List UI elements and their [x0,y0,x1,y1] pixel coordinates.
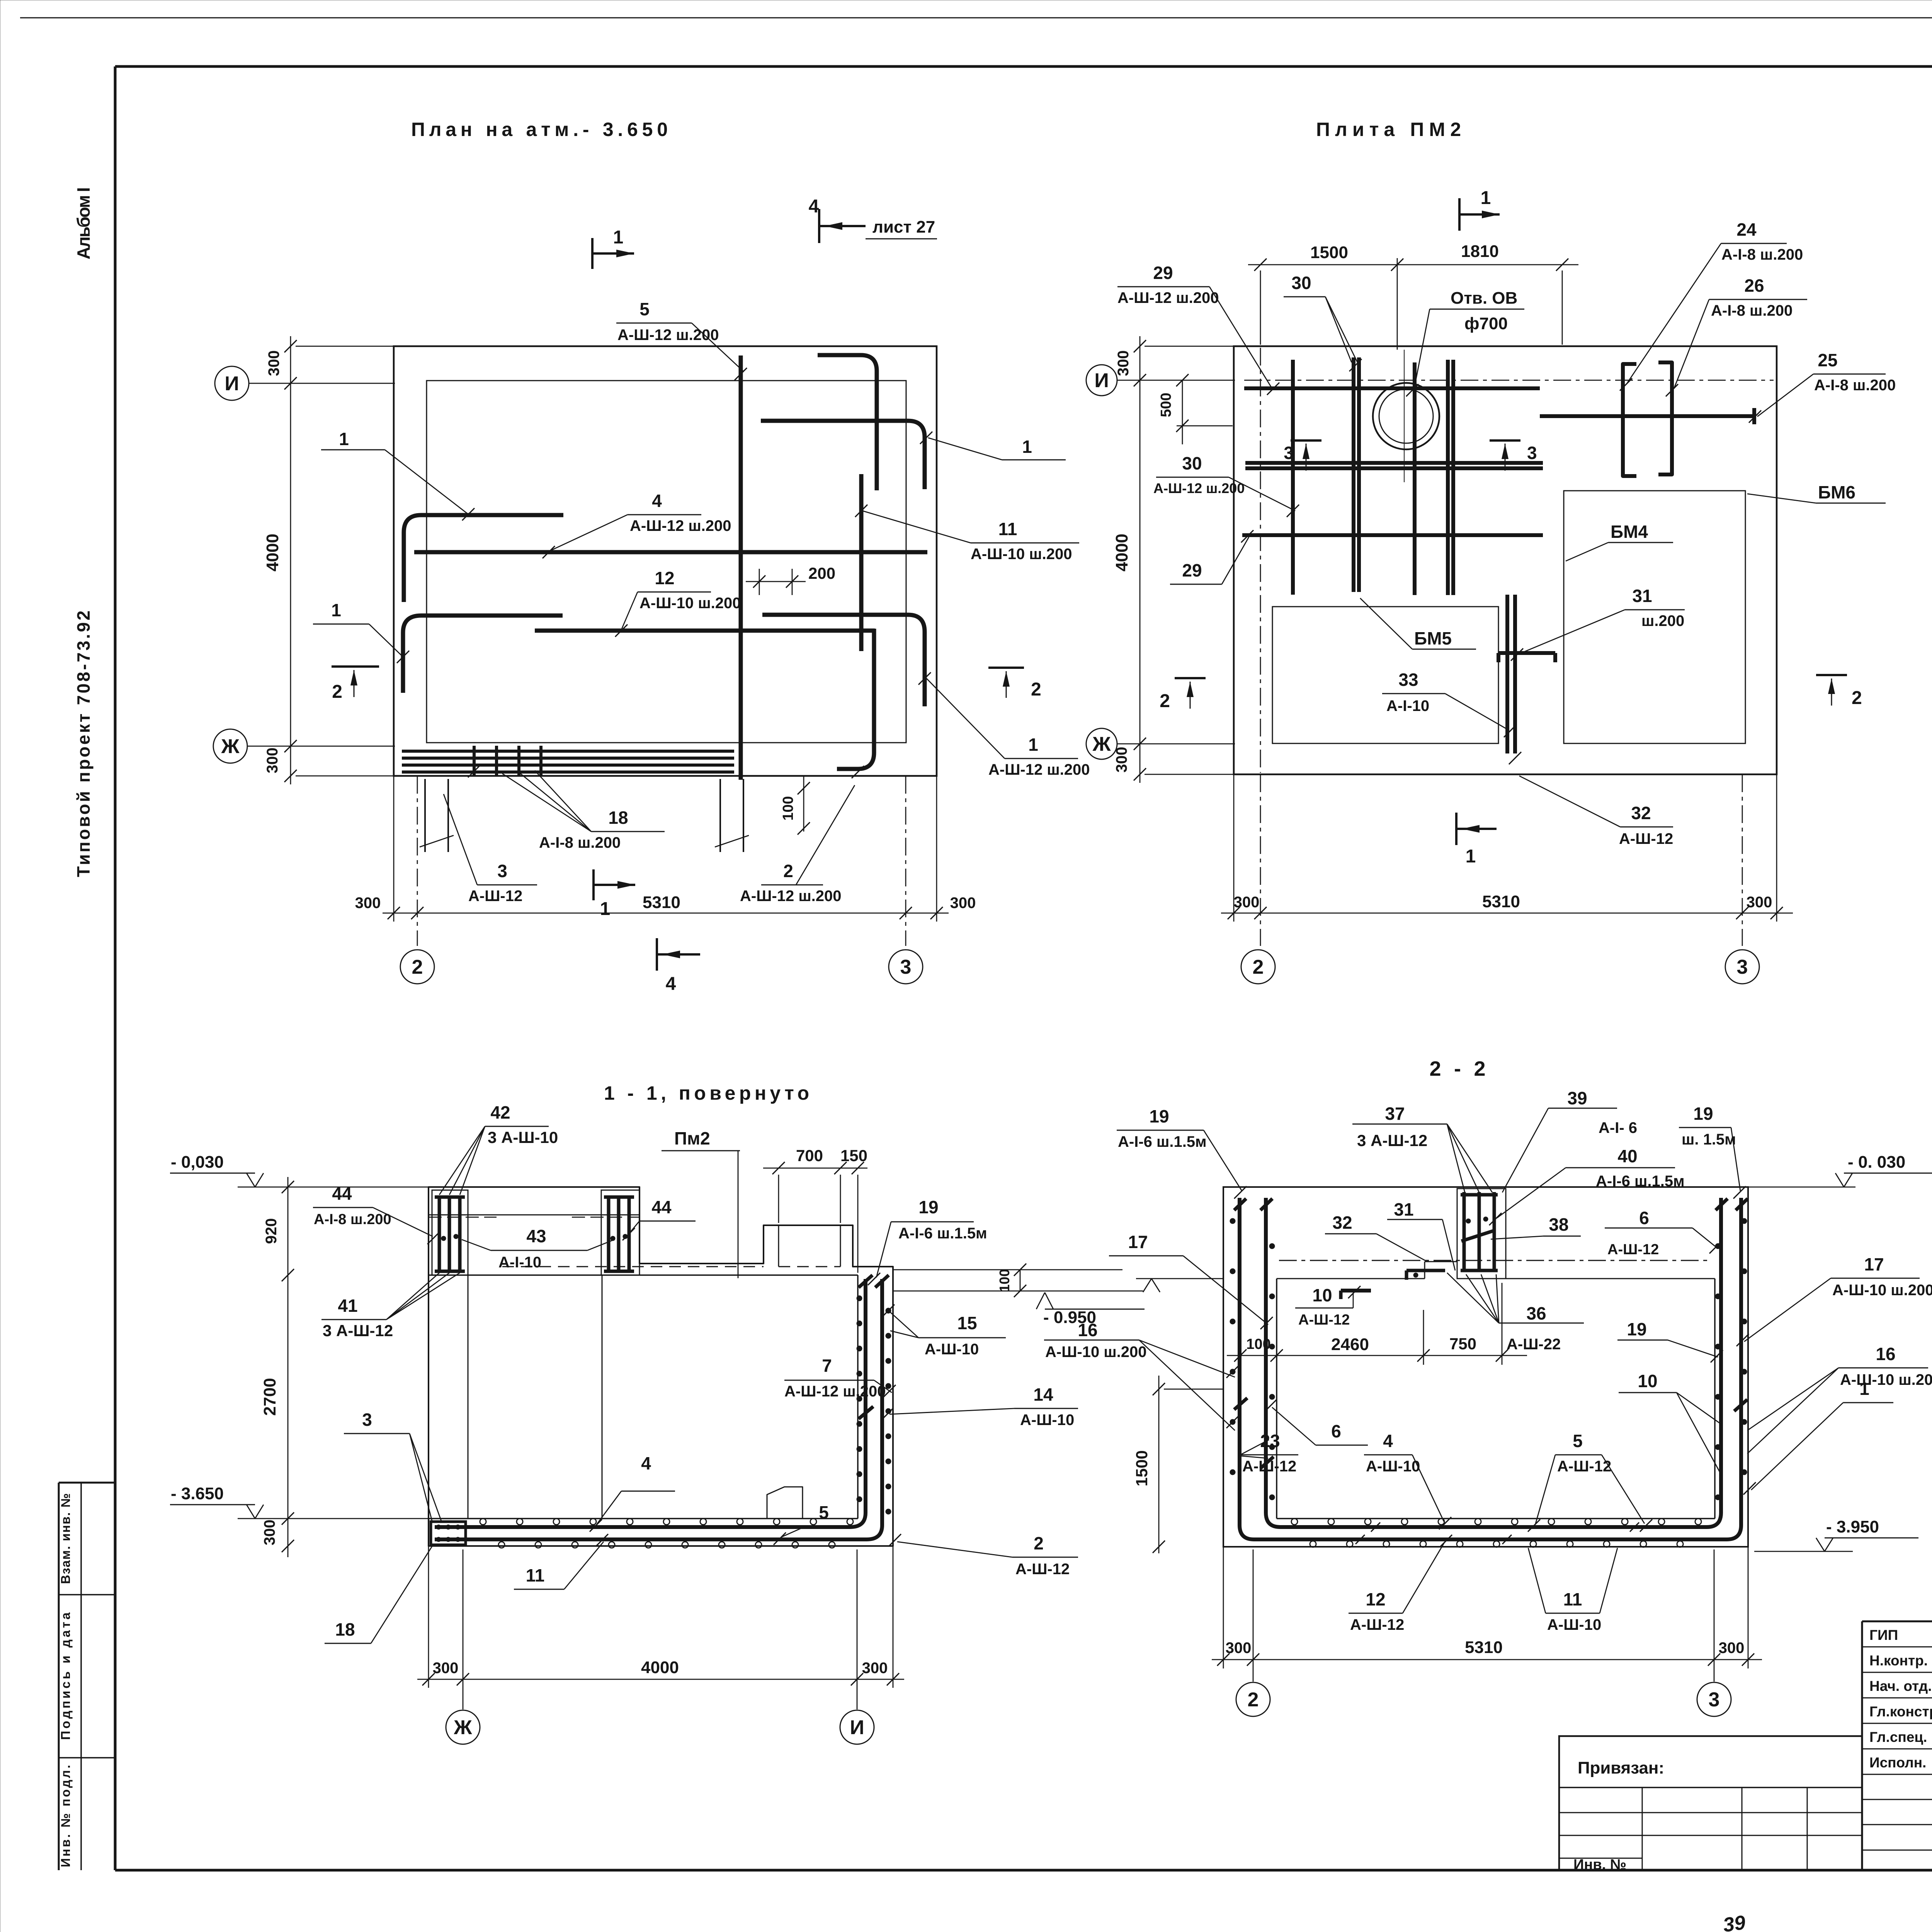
svg-text:4: 4 [652,491,662,511]
svg-text:3: 3 [1737,956,1748,978]
svg-text:А-Ш-10 ш.200: А-Ш-10 ш.200 [639,595,741,612]
svg-text:А-Ш-12 ш.200: А-Ш-12 ш.200 [988,761,1090,778]
svg-text:А-I-6 ш.1.5м: А-I-6 ш.1.5м [1118,1133,1207,1150]
svg-text:А-Ш-12: А-Ш-12 [1298,1312,1350,1328]
svg-text:3: 3 [1284,443,1294,463]
svg-text:500: 500 [1158,393,1174,417]
svg-text:5: 5 [639,299,650,319]
svg-text:41: 41 [338,1296,357,1316]
svg-text:1500: 1500 [1133,1450,1151,1486]
svg-text:3 А-Ш-10: 3 А-Ш-10 [488,1128,558,1146]
svg-text:32: 32 [1332,1213,1352,1233]
svg-text:300: 300 [1234,894,1260,911]
svg-text:25: 25 [1818,350,1837,370]
svg-text:10: 10 [1638,1371,1657,1391]
svg-text:А-I-8 ш.200: А-I-8 ш.200 [314,1211,391,1228]
svg-text:300: 300 [862,1660,888,1677]
svg-text:ш. 1.5м: ш. 1.5м [1682,1131,1736,1148]
svg-text:2: 2 [412,956,423,978]
svg-text:3 А-Ш-12: 3 А-Ш-12 [1357,1131,1427,1150]
svg-text:24: 24 [1736,219,1757,240]
svg-text:А-Ш-10: А-Ш-10 [1366,1458,1420,1475]
svg-text:4000: 4000 [1112,534,1131,571]
svg-text:3: 3 [1527,443,1537,463]
svg-text:1: 1 [1466,846,1476,867]
svg-text:300: 300 [265,350,282,376]
svg-text:Ж: Ж [221,735,240,758]
svg-text:12: 12 [655,568,674,588]
svg-text:Нач. отд.: Нач. отд. [1869,1678,1932,1694]
svg-text:4: 4 [809,196,819,217]
svg-text:1: 1 [1028,735,1038,755]
svg-text:39: 39 [1722,1911,1747,1932]
svg-text:44: 44 [332,1184,352,1204]
svg-text:23: 23 [1260,1431,1280,1451]
svg-text:300: 300 [355,895,381,912]
svg-text:3: 3 [1709,1689,1720,1711]
svg-text:А-Ш-10: А-Ш-10 [925,1341,979,1358]
svg-text:- 0,030: - 0,030 [171,1153,224,1172]
svg-text:А-I- 6: А-I- 6 [1599,1119,1637,1136]
svg-text:6: 6 [1639,1208,1649,1228]
svg-text:Плита ПМ2: Плита ПМ2 [1316,119,1461,140]
svg-text:2 - 2: 2 - 2 [1430,1057,1486,1080]
svg-text:300: 300 [950,895,976,912]
svg-text:4000: 4000 [641,1658,679,1677]
svg-text:100: 100 [997,1269,1012,1292]
svg-text:2: 2 [1248,1689,1259,1711]
svg-text:30: 30 [1182,453,1202,473]
svg-text:300: 300 [1226,1639,1252,1656]
svg-text:7: 7 [822,1355,832,1376]
svg-text:42: 42 [490,1102,510,1122]
svg-text:4000: 4000 [263,534,282,571]
svg-text:14: 14 [1033,1384,1053,1405]
svg-text:1: 1 [600,899,611,919]
svg-text:А-I-8 ш.200: А-I-8 ш.200 [1814,377,1896,394]
svg-text:2: 2 [1253,956,1264,978]
svg-text:700: 700 [796,1146,823,1165]
svg-text:12: 12 [1366,1589,1385,1609]
svg-text:2: 2 [332,682,342,702]
svg-text:38: 38 [1549,1214,1568,1235]
svg-text:БМ6: БМ6 [1818,482,1855,502]
svg-text:А-Ш-10 ш.200: А-Ш-10 ш.200 [1045,1344,1147,1361]
svg-text:Гл.констр.: Гл.констр. [1869,1704,1932,1719]
svg-text:16: 16 [1078,1320,1097,1340]
svg-text:19: 19 [1149,1106,1169,1126]
svg-text:5310: 5310 [643,893,680,912]
svg-text:А-I-6 ш.1.5м: А-I-6 ш.1.5м [898,1225,987,1242]
svg-text:300: 300 [261,1520,278,1546]
svg-text:19: 19 [918,1197,938,1217]
svg-text:И: И [850,1716,864,1739]
svg-text:11: 11 [526,1565,545,1585]
svg-text:4: 4 [666,974,676,994]
svg-text:А-Ш-12: А-Ш-12 [468,888,522,905]
svg-text:5: 5 [1573,1431,1583,1451]
svg-text:2700: 2700 [260,1378,279,1416]
svg-text:31: 31 [1632,586,1652,606]
svg-text:2460: 2460 [1331,1335,1369,1354]
svg-text:Типовой проект 708-73.92: Типовой проект 708-73.92 [73,611,94,877]
svg-text:19: 19 [1693,1104,1713,1124]
svg-text:Гл.спец.: Гл.спец. [1869,1729,1927,1745]
svg-text:300: 300 [1719,1639,1745,1656]
svg-text:32: 32 [1631,803,1651,823]
svg-text:БМ4: БМ4 [1611,522,1648,542]
svg-text:1: 1 [613,227,624,248]
svg-text:А-Ш-10 ш.200: А-Ш-10 ш.200 [1840,1371,1932,1388]
svg-text:А-I-8 ш.200: А-I-8 ш.200 [1711,302,1793,319]
svg-text:А-Ш-10 ш.200: А-Ш-10 ш.200 [971,546,1072,563]
svg-text:А-Ш-12 ш.200: А-Ш-12 ш.200 [630,517,731,534]
svg-text:БМ5: БМ5 [1414,628,1452,648]
svg-text:Отв. ОВ: Отв. ОВ [1451,289,1517,308]
svg-text:3: 3 [497,861,507,881]
svg-text:750: 750 [1449,1335,1476,1353]
svg-text:15: 15 [957,1313,977,1333]
svg-text:А-Ш-12 ш.200: А-Ш-12 ш.200 [1153,480,1245,496]
svg-text:Инв. №: Инв. № [1573,1857,1626,1873]
svg-text:Пм2: Пм2 [674,1128,710,1148]
svg-text:лист 27: лист 27 [872,218,935,236]
svg-text:А-Ш-12: А-Ш-12 [1015,1561,1070,1578]
svg-text:300: 300 [433,1660,459,1677]
svg-text:А-I-10: А-I-10 [498,1254,541,1271]
svg-text:150: 150 [840,1146,867,1165]
svg-text:6: 6 [1331,1421,1341,1441]
svg-text:А-Ш-22: А-Ш-22 [1507,1336,1561,1353]
svg-text:А-Ш-10 ш.200: А-Ш-10 ш.200 [1832,1282,1932,1299]
svg-text:Альбом I: Альбом I [73,187,94,260]
svg-text:- 3.650: - 3.650 [171,1484,224,1503]
svg-text:1: 1 [331,600,341,620]
svg-text:Исполн.: Исполн. [1869,1755,1926,1770]
svg-text:2: 2 [783,861,793,881]
svg-text:37: 37 [1385,1104,1405,1124]
svg-text:17: 17 [1864,1254,1884,1274]
svg-text:А-Ш-10: А-Ш-10 [1547,1616,1601,1633]
svg-text:ГИП: ГИП [1869,1627,1898,1643]
svg-text:11: 11 [998,519,1017,539]
svg-text:А-I-6 ш.1.5м: А-I-6 ш.1.5м [1596,1173,1685,1190]
svg-text:А-Ш-12 ш.200: А-Ш-12 ш.200 [617,327,719,344]
svg-text:26: 26 [1744,276,1764,296]
svg-text:19: 19 [1627,1319,1646,1339]
svg-text:5: 5 [819,1502,829,1522]
svg-text:39: 39 [1567,1088,1587,1108]
svg-text:А-Ш-12: А-Ш-12 [1557,1458,1611,1475]
svg-text:300: 300 [1747,894,1772,911]
svg-text:10: 10 [1312,1285,1332,1305]
svg-text:300: 300 [1113,747,1130,773]
svg-text:3 А-Ш-12: 3 А-Ш-12 [323,1321,393,1340]
svg-text:А-Ш-12: А-Ш-12 [1350,1616,1404,1633]
svg-text:5310: 5310 [1482,892,1520,911]
svg-text:200: 200 [808,564,835,582]
svg-text:100: 100 [780,796,796,820]
svg-text:Инв. № подл.: Инв. № подл. [58,1765,73,1867]
svg-text:30: 30 [1291,273,1311,293]
svg-text:300: 300 [264,748,281,774]
svg-text:1810: 1810 [1461,242,1499,261]
svg-text:А-I-8 ш.200: А-I-8 ш.200 [539,834,621,851]
svg-text:300: 300 [1115,350,1132,376]
svg-text:- 3.950: - 3.950 [1826,1517,1879,1536]
svg-text:Ж: Ж [1092,733,1111,755]
svg-text:29: 29 [1182,560,1202,580]
svg-text:4: 4 [1383,1431,1393,1451]
svg-text:920: 920 [263,1218,280,1244]
svg-text:ш.200: ш.200 [1641,612,1684,629]
svg-text:16: 16 [1876,1344,1895,1364]
svg-text:А-Ш-12: А-Ш-12 [1607,1242,1659,1258]
svg-text:4: 4 [641,1453,651,1473]
svg-text:18: 18 [335,1619,355,1639]
svg-text:ф700: ф700 [1464,314,1508,333]
svg-text:Взам. инв. №: Взам. инв. № [58,1493,73,1584]
svg-text:Ж: Ж [454,1716,473,1739]
svg-text:А-Ш-12 ш.200: А-Ш-12 ш.200 [784,1383,886,1400]
svg-text:А-Ш-12 ш.200: А-Ш-12 ш.200 [1117,289,1219,306]
svg-text:2: 2 [1160,691,1170,711]
svg-text:А-Ш-12: А-Ш-12 [1242,1458,1296,1475]
svg-text:И: И [1094,369,1109,392]
svg-text:А-I-10: А-I-10 [1386,697,1429,714]
svg-text:Н.контр.: Н.контр. [1869,1653,1928,1668]
svg-text:36: 36 [1526,1303,1546,1323]
svg-text:11: 11 [1563,1589,1582,1609]
svg-text:2: 2 [1034,1533,1044,1553]
svg-text:2: 2 [1852,688,1862,708]
svg-text:43: 43 [526,1226,546,1246]
svg-text:100: 100 [1246,1336,1270,1352]
svg-text:1: 1 [1022,437,1032,457]
svg-text:31: 31 [1394,1199,1413,1219]
svg-text:1: 1 [1859,1379,1869,1399]
svg-text:33: 33 [1398,670,1418,690]
svg-text:- 0. 030: - 0. 030 [1848,1153,1905,1172]
svg-text:А-Ш-10: А-Ш-10 [1020,1412,1074,1429]
svg-text:1: 1 [1481,188,1491,208]
svg-text:А-Ш-12: А-Ш-12 [1619,830,1673,847]
svg-text:44: 44 [651,1197,672,1217]
svg-text:29: 29 [1153,263,1173,283]
svg-text:А-I-8 ш.200: А-I-8 ш.200 [1721,246,1803,263]
svg-text:1: 1 [339,429,349,449]
svg-text:А-Ш-12 ш.200: А-Ш-12 ш.200 [740,888,842,905]
svg-text:2: 2 [1031,679,1041,700]
svg-text:5310: 5310 [1465,1638,1503,1657]
svg-text:17: 17 [1128,1232,1148,1252]
svg-text:Привязан:: Привязан: [1578,1759,1664,1777]
svg-text:40: 40 [1617,1146,1637,1166]
svg-text:18: 18 [608,808,628,828]
svg-text:И: И [224,372,239,395]
svg-text:3: 3 [362,1410,372,1430]
svg-text:1500: 1500 [1310,243,1348,262]
svg-text:3: 3 [900,956,912,978]
